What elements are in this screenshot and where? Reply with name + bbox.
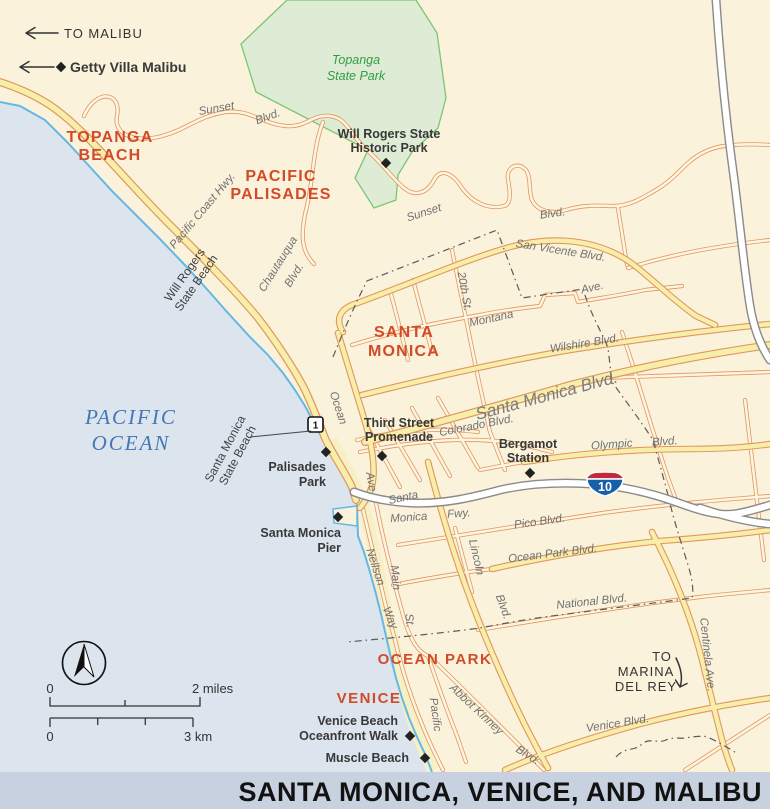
poi-muscle-beach-label: Muscle Beach [326,751,409,765]
poi-sm-pier-line1: Santa Monica [260,526,342,540]
scale-km-max: 3 km [184,729,212,744]
marina-label-line3: DEL REY [615,679,677,694]
region-pacific-palisades-line1: PACIFIC [245,168,316,185]
map-page: 1 10 PACIFIC OCEAN Topanga State Park TO… [0,0,770,809]
scale-km-zero: 0 [46,729,53,744]
getty-villa-label: Getty Villa Malibu [70,59,186,75]
region-santa-monica-line2: MONICA [368,343,440,360]
road-sm-fwy-label3: Fwy. [447,507,471,521]
region-topanga-beach-line1: TOPANGA [67,129,154,146]
poi-third-street-line1: Third Street [364,416,435,430]
scale-miles-max: 2 miles [192,681,234,696]
region-topanga-beach-line2: BEACH [79,147,142,164]
road-main-label2: St. [402,613,415,628]
topanga-park-label-line2: State Park [327,69,386,83]
poi-palisades-park-line1: Palisades [268,460,326,474]
poi-venice-walk-line1: Venice Beach [317,714,398,728]
map-title: SANTA MONICA, VENICE, AND MALIBU [239,777,763,807]
interstate-10-number: 10 [598,480,612,494]
map-canvas: 1 10 PACIFIC OCEAN Topanga State Park TO… [0,0,770,809]
ocean-label-line2: OCEAN [92,431,171,455]
marina-label-line2: MARINA [618,664,675,679]
marina-label-line1: TO [652,649,672,664]
poi-bergamot-line2: Station [507,451,549,465]
road-olympic-label2: Blvd. [652,435,678,449]
region-ocean-park: OCEAN PARK [378,651,493,668]
poi-palisades-park-line2: Park [299,475,326,489]
region-venice: VENICE [337,690,402,707]
topanga-park-label-line1: Topanga [332,53,380,67]
poi-will-rogers-park-line2: Historic Park [350,141,427,155]
to-malibu-label: TO MALIBU [64,26,143,41]
poi-sm-pier-line2: Pier [317,541,341,555]
route-1-shield: 1 [308,417,323,432]
region-santa-monica-line1: SANTA [374,324,434,341]
scale-miles-zero: 0 [46,681,53,696]
poi-bergamot-line1: Bergamot [499,437,558,451]
poi-third-street-line2: Promenade [365,430,433,444]
route-1-number: 1 [313,421,319,432]
poi-venice-walk-line2: Oceanfront Walk [299,729,398,743]
title-bar: SANTA MONICA, VENICE, AND MALIBU [0,772,770,809]
poi-will-rogers-park-line1: Will Rogers State [338,127,441,141]
region-pacific-palisades-line2: PALISADES [230,186,331,203]
ocean-label-line1: PACIFIC [84,405,177,429]
